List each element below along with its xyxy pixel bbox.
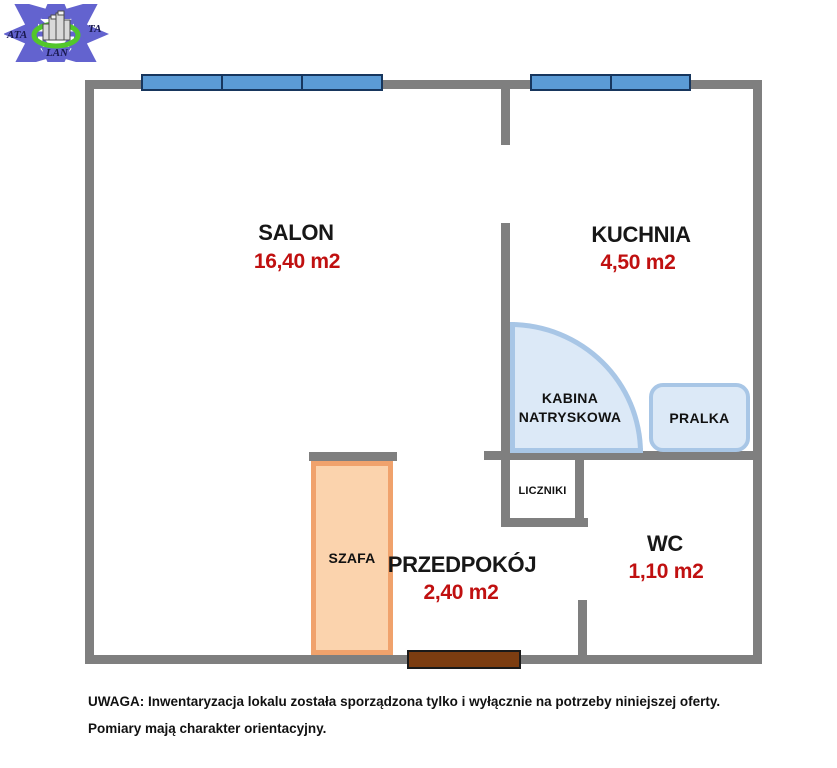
shower-label-line2: NATRYSKOWA <box>505 408 635 427</box>
window-pane <box>143 76 221 89</box>
wall-above-wardrobe <box>309 452 397 461</box>
logo-text-bottom: LAN <box>45 47 69 59</box>
agency-logo-icon: ATA TA LAN <box>4 4 110 62</box>
shower-cabin-label: KABINA NATRYSKOWA <box>505 389 635 427</box>
window-pane <box>612 76 690 89</box>
washing-machine: PRALKA <box>649 383 750 452</box>
window-pane <box>303 76 381 89</box>
wall-wc-partition <box>578 600 587 660</box>
shower-label-line1: KABINA <box>505 389 635 408</box>
disclaimer-line2: Pomiary mają charakter orientacyjny. <box>88 721 788 736</box>
wall-salon-kuchnia-upper <box>501 83 510 145</box>
logo-buildings-icon <box>43 11 70 40</box>
kuchnia-window-icon <box>530 74 691 91</box>
kuchnia-name: KUCHNIA <box>541 222 741 248</box>
wc-area: 1,10 m2 <box>566 560 766 584</box>
logo-text-right: TA <box>88 23 101 35</box>
logo-text-left: ATA <box>6 29 27 41</box>
kuchnia-area: 4,50 m2 <box>538 251 738 275</box>
przedpokoj-area: 2,40 m2 <box>361 581 561 605</box>
salon-window-icon <box>141 74 383 91</box>
meters-label: LICZNIKI <box>510 464 575 518</box>
wall-left <box>85 80 94 664</box>
entry-door <box>407 650 521 669</box>
floorplan-page: ATA TA LAN KABINA NATRYSKOWA PRALKA LICZ… <box>0 0 837 768</box>
window-pane <box>223 76 301 89</box>
salon-name: SALON <box>196 220 396 246</box>
wall-meters-bottom <box>501 518 588 527</box>
wall-meters-left <box>501 455 510 527</box>
wall-meters-right <box>575 455 584 527</box>
disclaimer-line1: UWAGA: Inwentaryzacja lokalu została spo… <box>88 694 788 709</box>
window-pane <box>532 76 610 89</box>
wc-name: WC <box>565 531 765 557</box>
przedpokoj-name: PRZEDPOKÓJ <box>362 552 562 578</box>
salon-area: 16,40 m2 <box>197 250 397 274</box>
shower-cabin-shape <box>510 322 643 453</box>
